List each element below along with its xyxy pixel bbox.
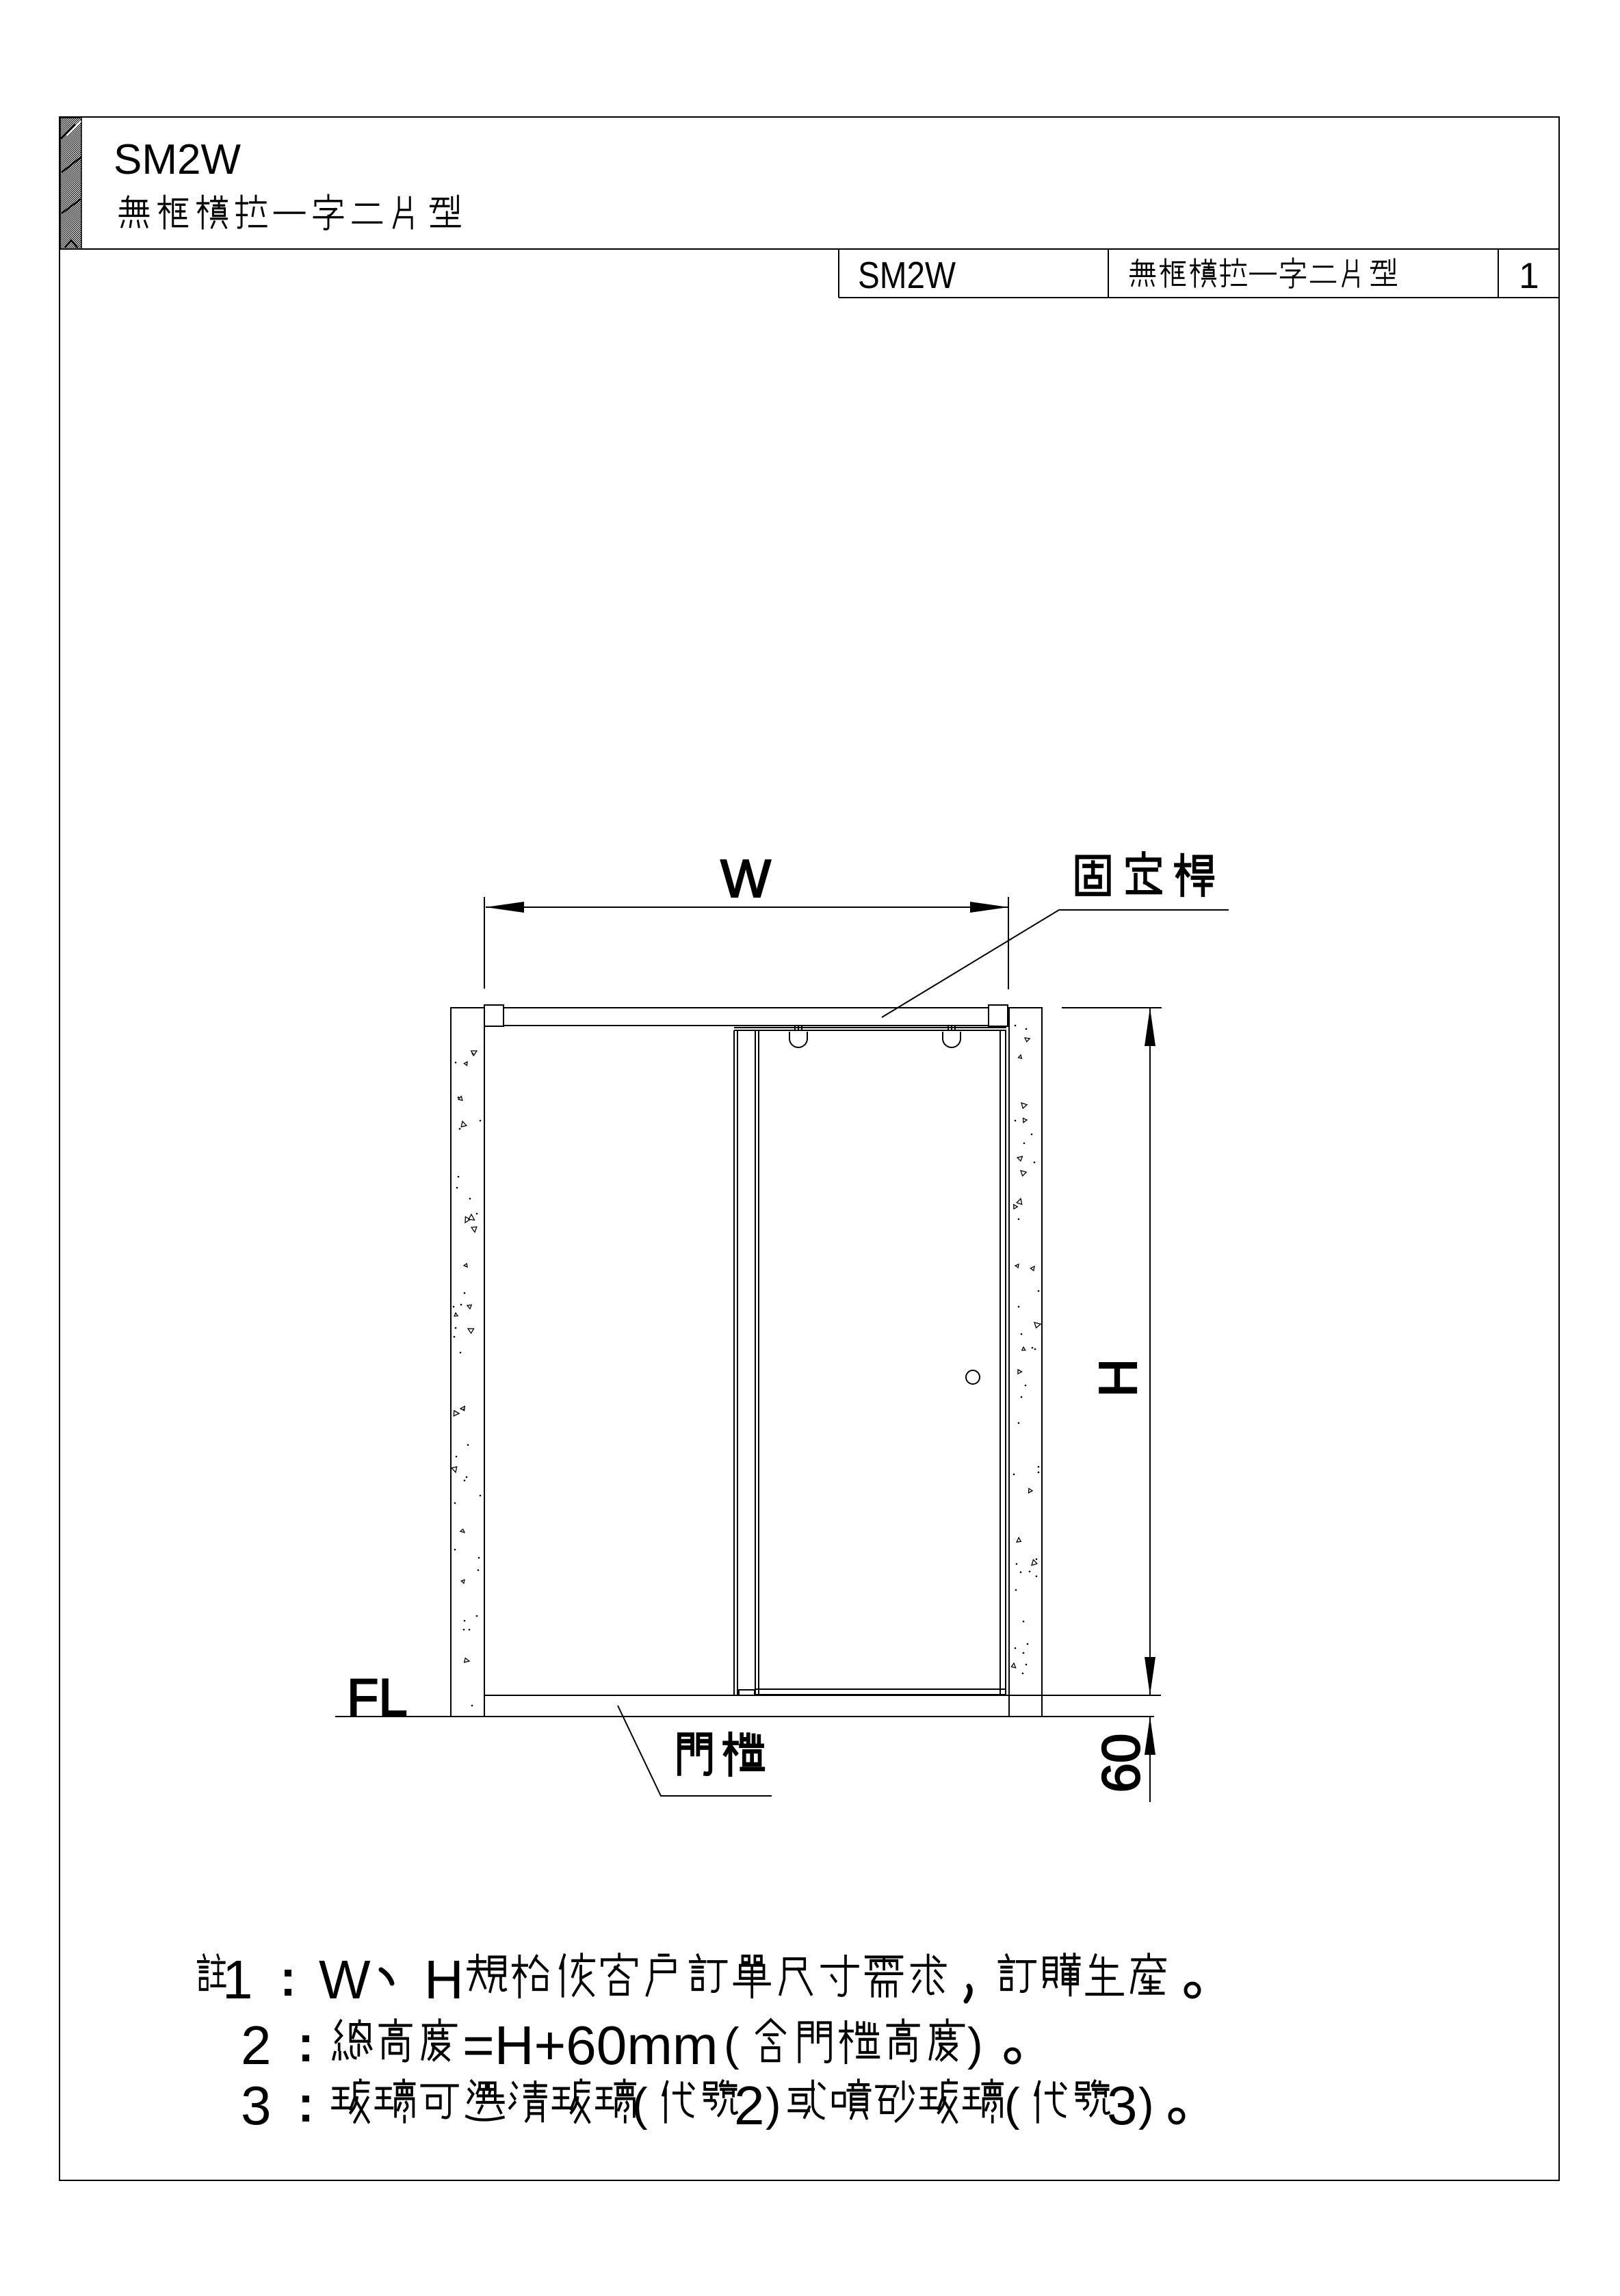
svg-text:3: 3 [1107, 2075, 1138, 2136]
svg-text:FL: FL [347, 1669, 408, 1727]
svg-text:): ) [766, 2078, 781, 2130]
svg-text:1: 1 [222, 1949, 253, 2010]
svg-text:3: 3 [241, 2075, 272, 2136]
svg-text:2: 2 [241, 2015, 272, 2076]
svg-text:H: H [424, 1949, 464, 2010]
svg-text:SM2W: SM2W [858, 254, 956, 296]
svg-text:): ) [1138, 2078, 1154, 2130]
svg-text:1: 1 [1519, 256, 1539, 296]
svg-text:W: W [720, 848, 771, 909]
svg-text:W: W [319, 1949, 371, 2010]
svg-text:2: 2 [734, 2075, 765, 2136]
svg-text:(: ( [1004, 2078, 1020, 2130]
svg-text:): ) [967, 2018, 983, 2070]
svg-text:(: ( [632, 2078, 648, 2130]
svg-text:60: 60 [1090, 1734, 1151, 1793]
svg-text:SM2W: SM2W [114, 136, 241, 183]
svg-text:H: H [1088, 1359, 1148, 1397]
svg-text:(: ( [724, 2018, 740, 2070]
svg-text:=H+60mm: =H+60mm [462, 2015, 718, 2076]
